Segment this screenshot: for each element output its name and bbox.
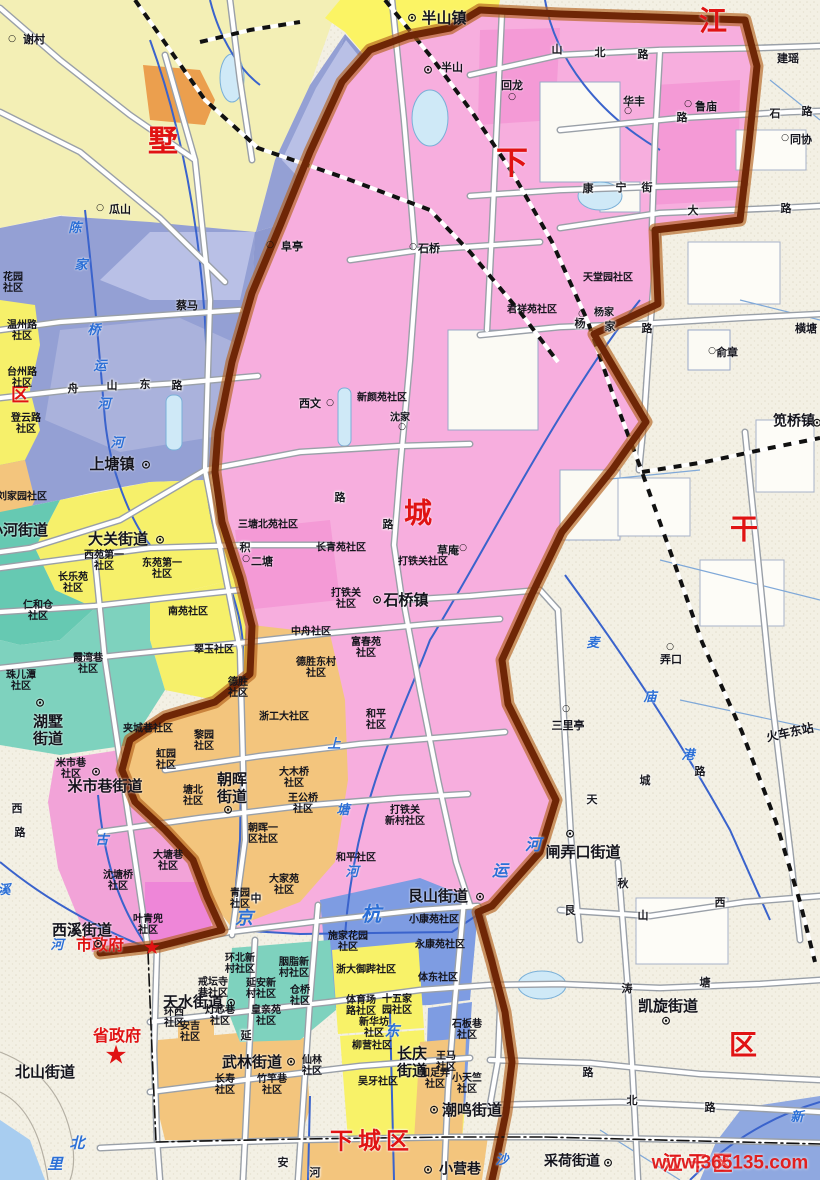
road-name-char: 涛 bbox=[622, 983, 633, 995]
community-label: 花园 社区 bbox=[3, 272, 23, 294]
village-dot-icon: ○ bbox=[242, 555, 250, 565]
water-name-char: 陈 bbox=[68, 222, 81, 236]
town-marker-icon: ⊙ bbox=[603, 1156, 613, 1169]
water-name-char: 桥 bbox=[87, 324, 100, 338]
district-label: 江干区 bbox=[663, 1152, 738, 1174]
town-marker-icon: ⊙ bbox=[407, 11, 417, 24]
town-marker-icon: ⊙ bbox=[429, 1103, 439, 1116]
community-label: 延安新 村社区 bbox=[246, 978, 276, 1000]
community-label: 和平社区 bbox=[336, 853, 376, 864]
town-label: 上塘镇 bbox=[89, 456, 134, 473]
water-name-char: 东 bbox=[384, 1023, 399, 1040]
water-name-char: 运 bbox=[93, 360, 106, 374]
water-name-char: 里 bbox=[47, 1156, 62, 1173]
community-label: 中舟社区 bbox=[291, 627, 331, 638]
community-label: 大塘巷 社区 bbox=[153, 850, 183, 872]
government-label: 省政府 bbox=[93, 1027, 141, 1045]
village-dot-icon: ○ bbox=[508, 93, 516, 103]
community-label: 三塘北苑社区 bbox=[238, 520, 298, 531]
district-label: 区 bbox=[729, 1031, 757, 1062]
water-name-char: 溪 bbox=[0, 884, 11, 898]
water-name-char: 古 bbox=[95, 834, 108, 848]
community-label: 环西 社区 bbox=[164, 1007, 184, 1029]
community-label: 体育场 路社区 bbox=[346, 995, 376, 1017]
village-dot-icon: ○ bbox=[8, 35, 16, 45]
road-name-char: 路 bbox=[172, 380, 183, 392]
town-label: 石桥镇 bbox=[383, 592, 428, 609]
community-label: 浙大御跸社区 bbox=[336, 965, 396, 976]
road-name-char: 河 bbox=[310, 1167, 321, 1179]
community-label: 知足弄 社区 bbox=[420, 1068, 450, 1090]
road-name-char: 北 bbox=[595, 47, 606, 59]
government-label: 市政府 bbox=[76, 936, 124, 954]
watermark: www.365135.com bbox=[652, 1154, 809, 1175]
community-label: 皇亲苑 社区 bbox=[251, 1005, 281, 1027]
community-label: 长寿 社区 bbox=[215, 1074, 235, 1096]
road-name-char: 路 bbox=[802, 106, 813, 118]
community-label: 叶青兜 社区 bbox=[133, 914, 163, 936]
place-label: 鲁庙 bbox=[695, 101, 717, 113]
water-name-char: 家 bbox=[74, 259, 87, 273]
street-office-label: 朝晖 街道 bbox=[217, 772, 247, 805]
street-office-label: 大关街道 bbox=[88, 531, 148, 548]
water-name-char: 河 bbox=[50, 939, 63, 953]
community-label: 柳营社区 bbox=[352, 1041, 392, 1052]
town-marker-icon: ⊙ bbox=[155, 533, 165, 546]
community-label: 王马 社区 bbox=[436, 1051, 456, 1073]
road-name-char: 家 bbox=[605, 321, 616, 333]
water-name-char: 运 bbox=[492, 862, 508, 880]
place-label: 横塘 bbox=[795, 323, 817, 335]
water-name-char: 麦 bbox=[586, 637, 599, 651]
community-label: 台州路 社区 bbox=[7, 367, 37, 389]
road-name-char: 西 bbox=[715, 897, 726, 909]
village-dot-icon: ○ bbox=[266, 241, 274, 251]
community-label: 仁和仓 社区 bbox=[23, 600, 53, 622]
village-dot-icon: ○ bbox=[562, 705, 570, 715]
community-label: 打铁关 社区 bbox=[331, 588, 361, 610]
water-name-char: 杭 bbox=[361, 903, 381, 925]
community-label: 新华坊 社区 bbox=[359, 1017, 389, 1039]
road-name-char: 路 bbox=[583, 1067, 594, 1079]
road-name-char: 街 bbox=[642, 182, 653, 194]
community-label: 塘北 社区 bbox=[183, 785, 203, 807]
road-name-char: 积 bbox=[240, 542, 251, 554]
road-name-char: 路 bbox=[383, 519, 394, 531]
street-office-label: 艮山街道 bbox=[408, 888, 468, 905]
place-label: 谢村 bbox=[23, 34, 45, 46]
road-name-char: 西 bbox=[12, 803, 23, 815]
community-label: 胭脂新 村社区 bbox=[279, 957, 309, 979]
street-office-label: 小河街道 bbox=[0, 522, 48, 539]
water-name-char: 北 bbox=[69, 1135, 84, 1152]
village-dot-icon: ○ bbox=[96, 204, 104, 214]
road-name-char: 山 bbox=[107, 380, 118, 392]
community-label: 刘家园社区 bbox=[0, 492, 47, 503]
community-label: 体东社区 bbox=[418, 973, 458, 984]
community-label: 和平 社区 bbox=[366, 709, 386, 731]
community-label: 小康苑社区 bbox=[409, 915, 459, 926]
community-label: 施家花园 社区 bbox=[328, 931, 368, 953]
town-marker-icon: ⊙ bbox=[91, 765, 101, 778]
community-label: 打铁关社区 bbox=[398, 557, 448, 568]
street-office-label: 武林街道 bbox=[222, 1054, 282, 1071]
community-label: 南苑社区 bbox=[168, 607, 208, 618]
road-name-char: 艮 bbox=[565, 905, 576, 917]
community-label: 东苑第一 社区 bbox=[142, 558, 182, 580]
community-label: 小天竺 社区 bbox=[452, 1073, 482, 1095]
road-name-char: 路 bbox=[15, 827, 26, 839]
town-label: 笕桥镇 bbox=[773, 414, 815, 429]
water-name-char: 庙 bbox=[643, 691, 656, 705]
street-office-label: 闸弄口街道 bbox=[545, 844, 620, 861]
town-marker-icon: ⊙ bbox=[565, 827, 575, 840]
road-name-char: 山 bbox=[552, 44, 563, 56]
place-label: 杨家 bbox=[594, 308, 614, 319]
district-label: 下城区 bbox=[330, 1129, 414, 1154]
place-label: 瓜山 bbox=[109, 204, 131, 216]
village-dot-icon: ○ bbox=[398, 423, 406, 433]
place-label: 三里亭 bbox=[552, 720, 585, 732]
community-label: 米市巷 社区 bbox=[56, 758, 86, 780]
road-name-char: 秋 bbox=[618, 878, 629, 890]
district-label: 江 bbox=[699, 7, 727, 38]
town-marker-icon: ⊙ bbox=[423, 1163, 433, 1176]
district-label: 墅 bbox=[148, 126, 178, 159]
community-label: 德胜 社区 bbox=[228, 677, 248, 699]
place-label: 沈家 bbox=[390, 413, 410, 424]
town-marker-icon: ⊙ bbox=[226, 996, 236, 1009]
village-dot-icon: ○ bbox=[326, 399, 334, 409]
community-label: 青园 社区 bbox=[230, 888, 250, 910]
community-label: 温州路 社区 bbox=[7, 320, 37, 342]
place-label: 弄口 bbox=[660, 654, 682, 666]
street-office-label: 天水街道 bbox=[163, 994, 223, 1011]
community-label: 灯芯巷 社区 bbox=[205, 1005, 235, 1027]
community-label: 珠儿潭 社区 bbox=[6, 670, 36, 692]
community-label: 夹城巷社区 bbox=[123, 724, 173, 735]
town-marker-icon: ⊙ bbox=[35, 696, 45, 709]
town-marker-icon: ⊙ bbox=[812, 416, 820, 429]
road-name-char: 大 bbox=[688, 205, 699, 217]
street-office-label: 采荷街道 bbox=[544, 1154, 600, 1169]
community-label: 富春苑 社区 bbox=[351, 637, 381, 659]
road-name-char: 路 bbox=[642, 323, 653, 335]
community-label: 戒坛寺 巷社区 bbox=[198, 977, 228, 999]
town-marker-icon: ⊙ bbox=[423, 63, 433, 76]
street-office-label: 凯旋街道 bbox=[638, 998, 698, 1015]
town-label: 小营巷 bbox=[439, 1162, 481, 1177]
community-label: 浙工大社区 bbox=[259, 712, 309, 723]
community-label: 翠玉社区 bbox=[194, 645, 234, 656]
community-label: 德胜东村 社区 bbox=[296, 657, 336, 679]
water-name-char: 上 bbox=[327, 738, 340, 752]
road-name-char: 路 bbox=[705, 1102, 716, 1114]
place-label: 草庵 bbox=[437, 545, 459, 557]
water-name-char: 河 bbox=[110, 437, 123, 451]
place-label: 蔡马 bbox=[176, 300, 198, 312]
road-name-char: 康 bbox=[583, 183, 594, 195]
labels-layer: 墅下城江干区区下城区江干区市政府★省政府★www.365135.com半山镇⊙半… bbox=[0, 0, 820, 1180]
village-dot-icon: ○ bbox=[666, 643, 674, 653]
road-name-char: 路 bbox=[638, 49, 649, 61]
water-name-char: 沙 bbox=[495, 1154, 508, 1168]
village-dot-icon: ○ bbox=[409, 243, 417, 253]
district-label: 下 bbox=[496, 145, 528, 180]
road-name-char: 塘 bbox=[700, 977, 711, 989]
road-name-char: 山 bbox=[638, 910, 649, 922]
community-label: 王公桥 社区 bbox=[288, 793, 318, 815]
water-name-char: 新 bbox=[790, 1111, 803, 1125]
community-label: 大家苑 社区 bbox=[269, 874, 299, 896]
water-name-char: 河 bbox=[97, 398, 110, 412]
gov-star-icon: ★ bbox=[104, 1042, 127, 1071]
town-marker-icon: ⊙ bbox=[661, 1014, 671, 1027]
road-name-char: 天 bbox=[587, 794, 598, 806]
street-office-label: 北山街道 bbox=[15, 1064, 75, 1081]
community-label: 仙林 社区 bbox=[302, 1055, 322, 1077]
place-label: 建瑶 bbox=[777, 53, 799, 65]
road-name-char: 路 bbox=[335, 492, 346, 504]
community-label: 环北新 村社区 bbox=[225, 953, 255, 975]
village-dot-icon: ○ bbox=[781, 134, 789, 144]
place-label: 石桥 bbox=[418, 243, 440, 255]
district-label: 城 bbox=[404, 499, 432, 530]
village-dot-icon: ○ bbox=[459, 544, 467, 554]
community-label: 安吉 社区 bbox=[180, 1021, 200, 1043]
village-dot-icon: ○ bbox=[684, 100, 692, 110]
community-label: 仓桥 社区 bbox=[290, 985, 310, 1007]
water-name-char: 港 bbox=[681, 749, 694, 763]
village-dot-icon: ○ bbox=[578, 310, 586, 320]
road-name-char: 路 bbox=[695, 766, 706, 778]
street-office-label: 潮鸣街道 bbox=[442, 1102, 502, 1119]
district-label: 干 bbox=[730, 515, 758, 546]
community-label: 霞湾巷 社区 bbox=[73, 653, 103, 675]
community-label: 君祥苑社区 bbox=[507, 305, 557, 316]
village-dot-icon: ○ bbox=[708, 347, 716, 357]
community-label: 朝晖一 区社区 bbox=[248, 823, 278, 845]
place-label: 半山 bbox=[441, 62, 463, 74]
town-marker-icon: ⊙ bbox=[223, 803, 233, 816]
place-label: 阜亭 bbox=[281, 241, 303, 253]
road-name-char: 东 bbox=[140, 379, 151, 391]
district-label: 区 bbox=[11, 386, 29, 406]
community-label: 西苑第一 社区 bbox=[84, 550, 124, 572]
city-district-map: 墅下城江干区区下城区江干区市政府★省政府★www.365135.com半山镇⊙半… bbox=[0, 0, 820, 1180]
road-name-char: 北 bbox=[627, 1095, 638, 1107]
town-label: 半山镇 bbox=[421, 10, 466, 27]
community-label: 大木桥 社区 bbox=[279, 767, 309, 789]
community-label: 长青苑社区 bbox=[316, 543, 366, 554]
community-label: 虹园 社区 bbox=[156, 749, 176, 771]
place-label: 华丰 bbox=[623, 96, 645, 108]
street-office-label: 长庆 街道 bbox=[397, 1046, 427, 1079]
community-label: 天堂园社区 bbox=[583, 273, 633, 284]
community-label: 登云路 社区 bbox=[11, 413, 41, 435]
road-name-char: 路 bbox=[677, 112, 688, 124]
village-dot-icon: ○ bbox=[624, 107, 632, 117]
place-label: 西文 bbox=[299, 398, 321, 410]
community-label: 十五家 园社区 bbox=[382, 994, 412, 1016]
street-office-label: 湖墅 街道 bbox=[33, 714, 63, 747]
road-name-char: 舟 bbox=[68, 383, 79, 395]
road-name-char: 延 bbox=[241, 1030, 252, 1042]
street-office-label: 西溪街道 bbox=[52, 922, 112, 939]
place-label: 二塘 bbox=[251, 556, 273, 568]
town-marker-icon: ⊙ bbox=[475, 890, 485, 903]
water-name-char: 河 bbox=[345, 866, 358, 880]
place-label: 同协 bbox=[790, 134, 812, 146]
road-name-char: 路 bbox=[781, 203, 792, 215]
road-name-char: 中 bbox=[251, 893, 262, 905]
road-name-char: 石 bbox=[770, 108, 781, 120]
town-marker-icon: ⊙ bbox=[372, 593, 382, 606]
water-name-char: 京 bbox=[235, 909, 253, 929]
road-name-char: 城 bbox=[640, 775, 651, 787]
town-marker-icon: ⊙ bbox=[286, 1055, 296, 1068]
street-office-label: 米市巷街道 bbox=[67, 778, 142, 795]
community-label: 吴牙社区 bbox=[358, 1077, 398, 1088]
community-label: 石板巷 社区 bbox=[452, 1019, 482, 1041]
place-label: 回龙 bbox=[501, 80, 523, 92]
water-name-char: 河 bbox=[525, 836, 541, 854]
place-label: 俞章 bbox=[716, 347, 738, 359]
road-name-char: 宁 bbox=[616, 182, 627, 194]
town-marker-icon: ⊙ bbox=[141, 458, 151, 471]
community-label: 黎园 社区 bbox=[194, 730, 214, 752]
place-label: 火车东站 bbox=[765, 722, 815, 745]
community-label: 永康苑社区 bbox=[415, 940, 465, 951]
town-marker-icon: ⊙ bbox=[93, 937, 103, 950]
community-label: 长乐苑 社区 bbox=[58, 572, 88, 594]
community-label: 竹竿巷 社区 bbox=[257, 1074, 287, 1096]
community-label: 打铁关 新村社区 bbox=[385, 805, 425, 827]
gov-star-icon: ★ bbox=[143, 936, 161, 958]
water-name-char: 塘 bbox=[336, 804, 349, 818]
community-label: 沈塘桥 社区 bbox=[103, 870, 133, 892]
road-name-char: 杨 bbox=[575, 318, 586, 330]
road-name-char: 安 bbox=[278, 1157, 289, 1169]
community-label: 新颜苑社区 bbox=[357, 393, 407, 404]
